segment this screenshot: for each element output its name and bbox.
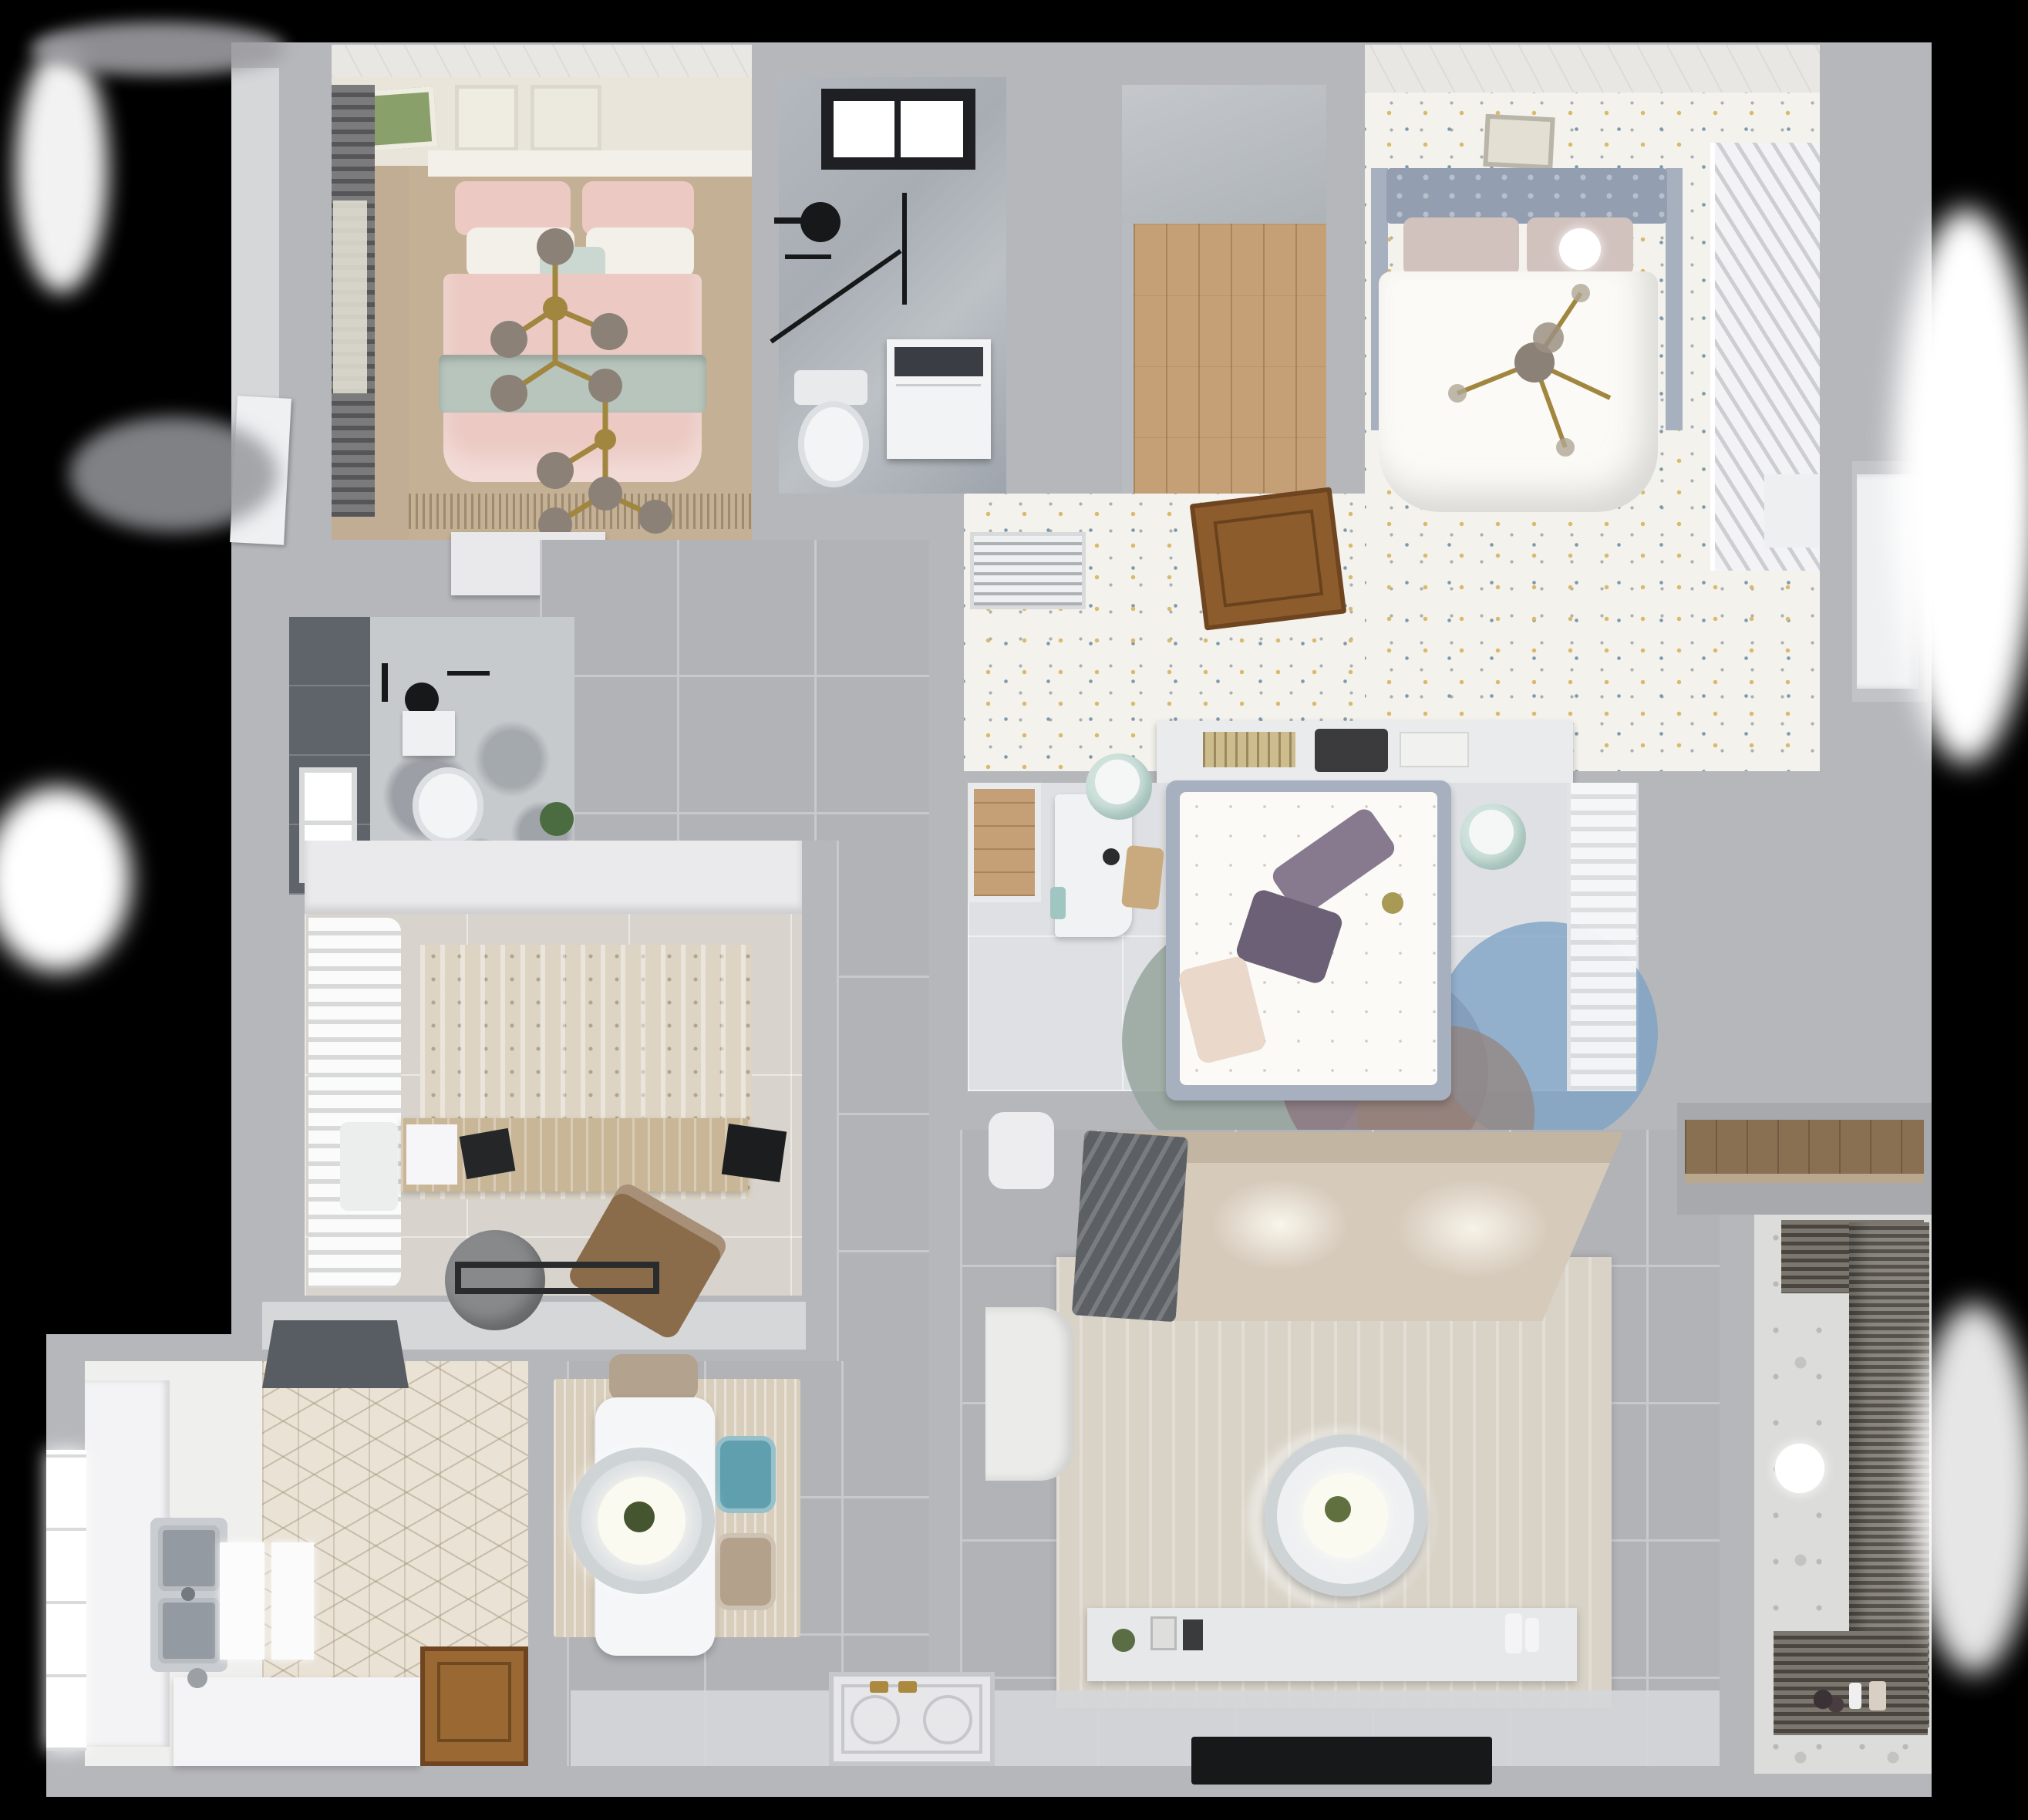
sectional-sofa — [1118, 1132, 1623, 1321]
wall-art-frame-icon — [455, 85, 518, 151]
shower-valves — [785, 254, 831, 259]
toilet-tank — [794, 370, 867, 405]
room-study — [305, 841, 802, 1296]
ceiling-band-bedroom-main — [1365, 45, 1820, 93]
armchair — [985, 1307, 1074, 1481]
closet-marble-band — [1122, 85, 1326, 224]
ball-lamp-icon — [1775, 1444, 1824, 1493]
wood-shelf — [1685, 1120, 1924, 1178]
toys — [1814, 1689, 1844, 1715]
figure-beige — [1869, 1681, 1886, 1710]
range-hood-icon — [262, 1320, 409, 1388]
tv-panel — [1191, 1737, 1492, 1785]
open-wood-door — [1190, 487, 1347, 630]
window-view — [333, 201, 367, 393]
headboard-shelf — [1157, 721, 1573, 783]
laptop-icon — [460, 1128, 516, 1179]
pendant-lamp — [568, 1448, 715, 1594]
head-chair — [609, 1354, 698, 1400]
skylight-mullion — [894, 91, 901, 167]
teal-chair — [716, 1436, 776, 1513]
light-bleed — [15, 46, 108, 293]
vase-white — [1525, 1618, 1539, 1652]
room-balcony — [1754, 1215, 1932, 1774]
serving-tray — [220, 1542, 264, 1660]
room-bathroom-top — [779, 77, 1006, 494]
sheer-curtain-wardrobe — [1567, 783, 1636, 1091]
shadow-step — [31, 22, 285, 76]
plant-icon — [540, 802, 574, 836]
wood-door-kitchen — [420, 1646, 528, 1766]
white-curtains — [308, 918, 401, 1288]
side-stool — [989, 1112, 1054, 1189]
washing-machine — [887, 339, 991, 459]
wall-art-frame-sprig-icon — [531, 85, 601, 151]
light-bleed — [1912, 1303, 2028, 1673]
ceiling-fan-icon — [1411, 247, 1658, 494]
wall-art-frame-green-icon — [364, 86, 437, 151]
picture-frame — [1150, 1616, 1177, 1650]
entrance-mat — [829, 1672, 995, 1766]
entry-light-strip — [571, 1690, 1720, 1766]
kitchen-window — [46, 1450, 86, 1751]
cabinet-band — [305, 841, 802, 914]
washer-control-panel — [894, 347, 983, 376]
sink-basin — [158, 1598, 220, 1663]
shower-valve — [447, 671, 490, 676]
sink-basin — [158, 1525, 220, 1591]
gold-ornament — [1382, 892, 1403, 914]
tan-chair — [716, 1533, 776, 1610]
island-faucet — [187, 1668, 207, 1688]
wood-inset-floor — [968, 783, 1041, 902]
monitor-icon — [722, 1124, 787, 1182]
gold-handle-icon — [870, 1681, 888, 1693]
bottle-white — [1849, 1683, 1861, 1709]
books-stack — [1203, 732, 1295, 767]
shadow-step — [69, 416, 278, 532]
round-coffee-table — [1265, 1434, 1427, 1596]
pendant-plant — [624, 1501, 655, 1532]
room-bedroom-pink — [332, 77, 752, 540]
light-bleed — [1893, 208, 2028, 763]
teal-bottle — [1050, 887, 1066, 919]
hallway-upper — [540, 540, 929, 841]
room-bedroom-middle — [968, 783, 1639, 1091]
desk-knob — [1103, 848, 1120, 865]
ceiling-band — [332, 45, 752, 77]
light-bleed — [0, 787, 131, 972]
toilet-bowl — [413, 767, 483, 844]
headboard-rail — [1666, 168, 1683, 430]
gold-handle-icon — [898, 1681, 917, 1693]
gray-throw — [1072, 1131, 1188, 1323]
serving-tray — [271, 1542, 314, 1660]
storage-niche — [1677, 1103, 1932, 1215]
wood-chair — [1121, 845, 1164, 911]
corner-desk-white — [1764, 474, 1820, 548]
floorplan-scene — [0, 0, 2028, 1820]
side-chair-white — [340, 1122, 398, 1211]
shower-arm — [774, 217, 810, 224]
console-plant — [1112, 1629, 1135, 1652]
gold-branch-chandelier-icon — [463, 239, 694, 578]
vase-white — [1505, 1613, 1522, 1653]
ac-vent-icon — [970, 532, 1086, 609]
room-kitchen — [85, 1361, 528, 1766]
bed-middle — [1166, 780, 1451, 1100]
white-island — [173, 1677, 420, 1766]
wall-art-frame-icon — [1483, 114, 1555, 170]
shelf-edge — [1685, 1174, 1924, 1183]
sink-unit — [150, 1518, 227, 1672]
dark-box — [1315, 729, 1388, 772]
faucet-icon — [181, 1587, 195, 1601]
table-plant — [1325, 1496, 1351, 1522]
toilet-bowl — [798, 401, 869, 487]
tufted-headboard — [1386, 168, 1667, 224]
floor-mat-black — [455, 1262, 659, 1294]
shower-glass-frame — [902, 193, 907, 305]
tv-console — [1087, 1608, 1577, 1681]
hallway-mid — [837, 841, 929, 1361]
shower-arm — [382, 663, 388, 702]
picture-frame-dark — [1183, 1619, 1203, 1650]
shower-glass-frame — [770, 249, 901, 343]
mint-stool — [1086, 753, 1152, 820]
paper-sheet — [406, 1124, 457, 1185]
mint-stool — [1460, 804, 1526, 870]
wood-plank-floor — [1134, 224, 1326, 509]
white-books — [1400, 732, 1469, 767]
washer-door-line — [896, 384, 981, 386]
paper-shelf — [403, 711, 455, 756]
room-closet — [1122, 85, 1326, 532]
headboard-ledge — [428, 150, 752, 177]
